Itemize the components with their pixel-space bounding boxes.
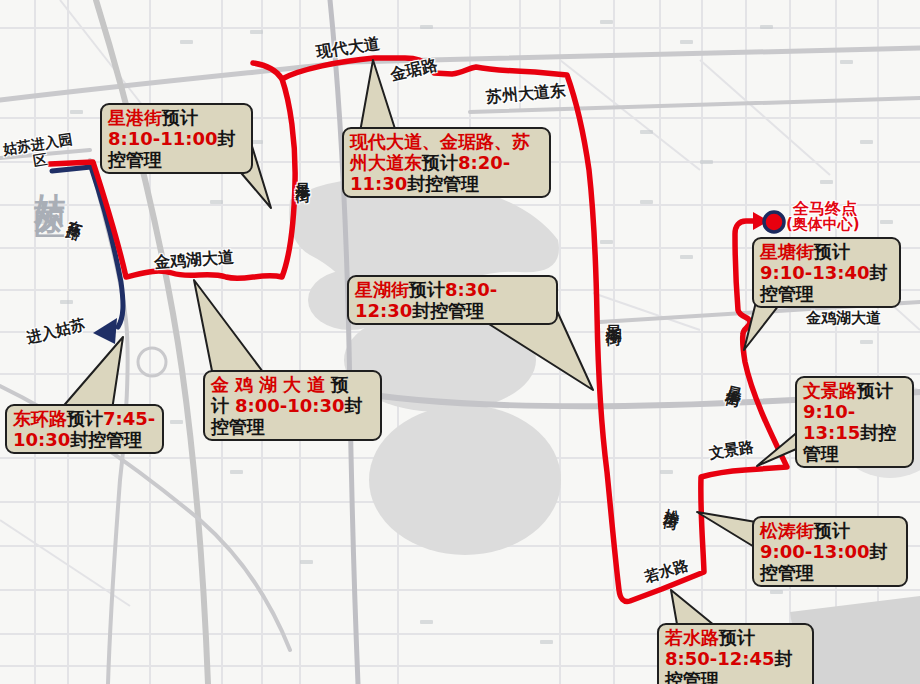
callout-ruoshui-road: 若水路预计8:50-12:45封控管理 [657,623,814,684]
road-label-jinjihu-avenue-east: 金鸡湖大道 [806,311,881,327]
callout-xingtang-street: 星塘街预计9:10-13:40封控管理 [752,237,901,308]
callout-xiandai-jinju-suzhou: 现代大道、金琚路、苏州大道东预计8:20-11:30封控管理 [342,127,551,198]
callout-xinghu-street: 星湖街预计8:30-12:30封控管理 [347,275,558,325]
callout-songtao-street: 松涛街预计9:00-13:00封控管理 [752,516,908,587]
callout-wenjing-road: 文景路预计9:10-13:15封控管理 [795,376,914,468]
road-closure-map: 姑苏区 姑苏进入园 区 进入姑苏 现代大道 金琚路 苏州大道东 星港街 金鸡湖大… [0,0,920,684]
callout-jinjihu-avenue: 金鸡湖大道预计8:00-10:30封控管理 [203,370,382,441]
watermark-gusu-district: 姑苏区 [34,168,65,195]
finish-label-line2: (奥体中心) [786,215,860,234]
callout-donghuan-road: 东环路预计7:45-10:30封控管理 [5,404,164,454]
road-label-xinggang-street: 星港街 [294,170,310,179]
road-label-xinghu-street: 星湖街 [605,311,622,320]
finish-dot [764,212,784,232]
callout-xinggang-street: 星港街预计8:10-11:00封控管理 [100,103,253,174]
